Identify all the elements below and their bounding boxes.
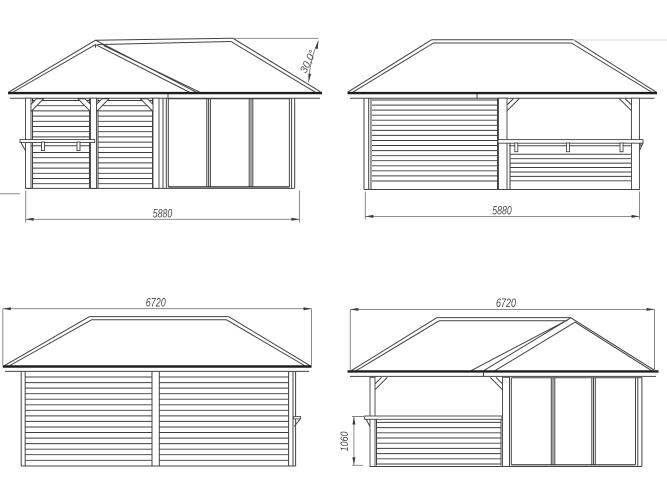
svg-text:6720: 6720 (496, 298, 516, 310)
svg-text:5880: 5880 (153, 209, 173, 221)
svg-text:30,0°: 30,0° (298, 48, 319, 75)
svg-text:5880: 5880 (492, 206, 512, 218)
svg-text:1060: 1060 (339, 431, 351, 452)
svg-text:6720: 6720 (146, 297, 166, 309)
